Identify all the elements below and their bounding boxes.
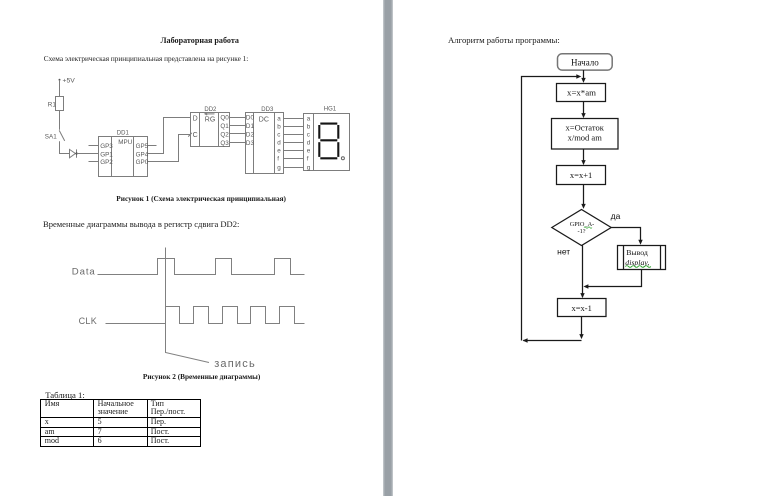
svg-text:D0: D0 — [246, 115, 255, 122]
svg-text:DD2: DD2 — [204, 107, 217, 113]
svg-text:a: a — [277, 116, 281, 123]
svg-text:+5V: +5V — [63, 77, 76, 84]
svg-text:x=x-1: x=x-1 — [572, 303, 592, 313]
svg-text:c: c — [307, 132, 310, 139]
svg-text:g: g — [277, 165, 281, 172]
svg-text:D1: D1 — [246, 123, 255, 130]
svg-text:f: f — [307, 156, 309, 163]
svg-text:Вывод: Вывод — [626, 248, 648, 257]
svg-text:Q3: Q3 — [220, 140, 229, 147]
svg-text:GP0: GP0 — [136, 159, 149, 166]
svg-text:GP4: GP4 — [136, 151, 149, 158]
svg-text:DC: DC — [259, 117, 269, 124]
svg-text:d: d — [277, 140, 281, 147]
svg-text:x=Остаток: x=Остаток — [566, 123, 605, 133]
svg-text:CLK: CLK — [79, 316, 97, 326]
svg-text:MPU: MPU — [118, 139, 132, 146]
svg-text:R1: R1 — [48, 102, 57, 109]
svg-text:-1?: -1? — [577, 228, 585, 235]
svg-text:Q0: Q0 — [220, 115, 229, 122]
svg-text:GPIO_A-: GPIO_A- — [570, 221, 595, 228]
svg-text:D2: D2 — [246, 131, 255, 138]
svg-text:Q2: Q2 — [220, 131, 229, 138]
svg-text:c: c — [277, 132, 280, 139]
svg-text:a: a — [307, 116, 311, 123]
svg-text:GP3: GP3 — [100, 143, 113, 150]
svg-text:e: e — [307, 148, 311, 155]
svg-text:GP2: GP2 — [100, 159, 113, 166]
svg-text:x=x+1: x=x+1 — [570, 170, 592, 180]
svg-text:Data: Data — [72, 266, 96, 277]
svg-text:RG: RG — [205, 117, 216, 124]
svg-text:SA1: SA1 — [45, 134, 57, 141]
svg-text:C: C — [193, 132, 198, 139]
svg-text:f: f — [277, 156, 279, 163]
svg-text:запись: запись — [214, 358, 256, 370]
svg-text:D3: D3 — [246, 140, 255, 147]
svg-text:нет: нет — [557, 247, 570, 257]
svg-text:b: b — [277, 124, 281, 131]
svg-text:x=x*am: x=x*am — [567, 87, 596, 97]
svg-text:d: d — [307, 140, 311, 147]
svg-text:e: e — [277, 148, 281, 155]
svg-text:GP5: GP5 — [136, 143, 149, 150]
svg-text:b: b — [307, 124, 311, 131]
svg-text:g: g — [307, 165, 311, 172]
svg-text:DD3: DD3 — [261, 107, 274, 113]
svg-text:GP1: GP1 — [100, 151, 113, 158]
svg-text:HG1: HG1 — [324, 107, 337, 113]
svg-text:D: D — [193, 116, 198, 123]
svg-text:Начало: Начало — [571, 58, 599, 68]
svg-text:да: да — [611, 211, 621, 221]
svg-text:DD1: DD1 — [117, 131, 130, 137]
svg-text:x/mod am: x/mod am — [568, 132, 603, 142]
svg-text:Q1: Q1 — [220, 123, 229, 130]
